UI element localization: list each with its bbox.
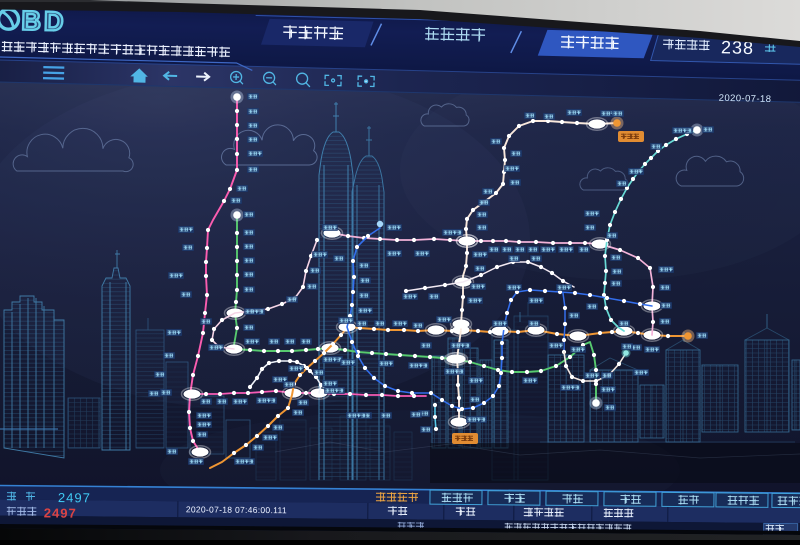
svg-text:2020-07-18 07:46:00.111: 2020-07-18 07:46:00.111: [186, 504, 287, 515]
svg-text:2020-07-18: 2020-07-18: [719, 93, 772, 105]
svg-text:2497: 2497: [58, 490, 91, 505]
svg-text:2497: 2497: [44, 505, 77, 520]
